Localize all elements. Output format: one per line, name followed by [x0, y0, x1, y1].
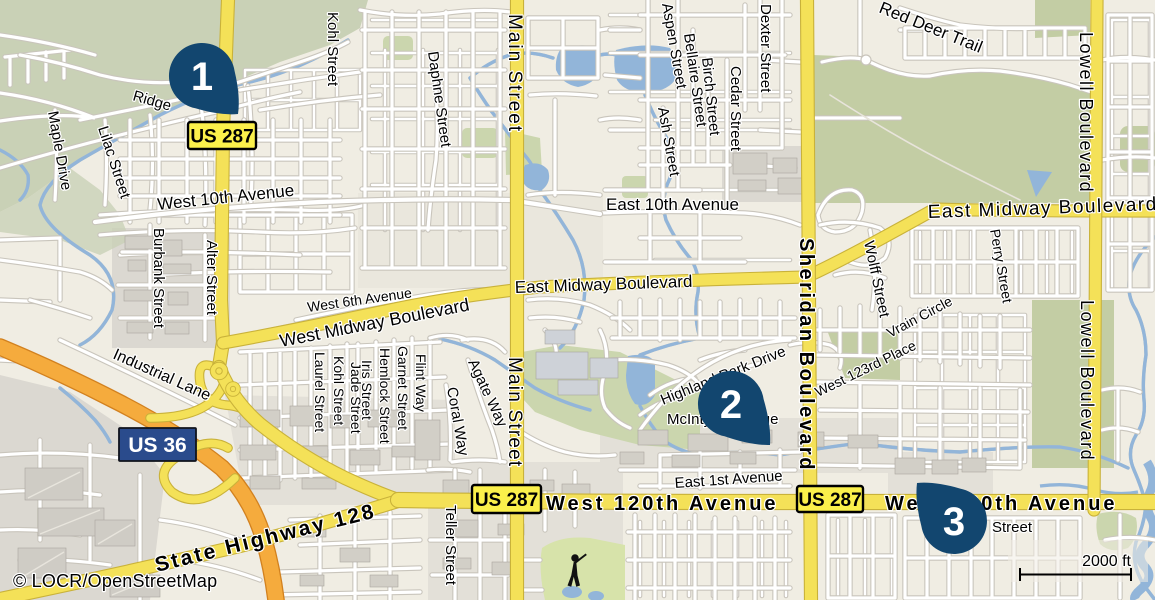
- svg-text:US 287: US 287: [190, 126, 253, 147]
- svg-text:2: 2: [720, 383, 742, 427]
- svg-text:East 10th Avenue: East 10th Avenue: [606, 195, 739, 214]
- svg-text:Alter Street: Alter Street: [203, 240, 220, 316]
- svg-text:US 287: US 287: [475, 490, 538, 511]
- svg-text:Cedar Street: Cedar Street: [727, 66, 744, 152]
- svg-text:Kohl Street: Kohl Street: [324, 12, 341, 87]
- svg-text:Main Street: Main Street: [504, 14, 525, 133]
- svg-text:Hemlock Street: Hemlock Street: [377, 348, 393, 444]
- svg-text:Kohl Street: Kohl Street: [331, 356, 347, 425]
- svg-text:Flint Way: Flint Way: [413, 354, 429, 412]
- svg-text:3: 3: [943, 500, 965, 544]
- svg-text:Street: Street: [992, 519, 1033, 536]
- svg-text:Burbank Street: Burbank Street: [150, 228, 167, 329]
- svg-text:Dexter Street: Dexter Street: [757, 4, 774, 93]
- svg-text:Sheridan Boulevard: Sheridan Boulevard: [795, 238, 817, 472]
- svg-text:Teller Street: Teller Street: [442, 505, 459, 586]
- svg-text:Iris Street: Iris Street: [359, 360, 375, 420]
- svg-text:Lowell Boulevard: Lowell Boulevard: [1077, 300, 1097, 461]
- svg-text:2000 ft: 2000 ft: [1082, 553, 1131, 570]
- svg-text:US 36: US 36: [128, 434, 186, 457]
- svg-text:West 120th Avenue: West 120th Avenue: [546, 493, 779, 515]
- svg-text:Lowell Boulevard: Lowell Boulevard: [1076, 32, 1096, 193]
- svg-text:© LOCR/OpenStreetMap: © LOCR/OpenStreetMap: [13, 571, 217, 591]
- svg-text:Main Street: Main Street: [504, 357, 525, 467]
- svg-text:Garnet Street: Garnet Street: [395, 346, 411, 430]
- svg-text:Laurel Street: Laurel Street: [312, 352, 328, 432]
- svg-text:US 287: US 287: [798, 490, 861, 511]
- svg-text:1: 1: [191, 55, 213, 99]
